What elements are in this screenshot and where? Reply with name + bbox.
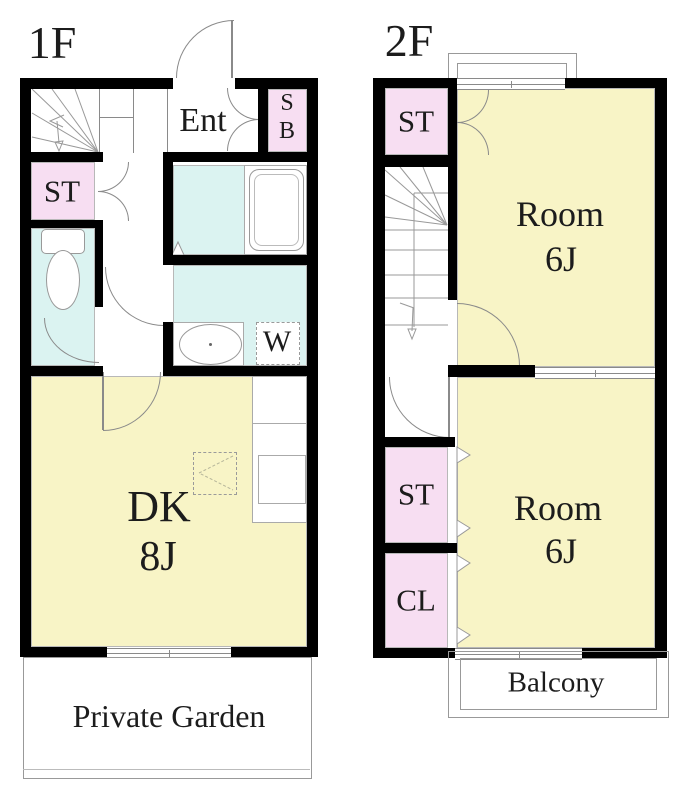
stove-chevron-icon — [195, 454, 235, 492]
storage-label: ST — [44, 176, 80, 207]
wall — [373, 78, 385, 658]
wall — [20, 220, 103, 228]
wall — [20, 366, 103, 376]
storage-2f-top-label: ST — [398, 106, 434, 137]
room2-size-label: 6J — [545, 533, 577, 569]
counter-divider — [253, 423, 306, 424]
washroom-door-arc — [105, 267, 164, 326]
storage-door-arc — [98, 162, 129, 192]
wall — [373, 648, 455, 658]
wall — [385, 543, 457, 553]
floor-plan-canvas: 1F — [0, 0, 690, 800]
dk-label: DK — [127, 485, 191, 529]
stair-edge-line — [99, 89, 100, 152]
wall — [655, 78, 667, 658]
floor1-title: 1F — [28, 20, 77, 66]
washbasin-drain — [209, 343, 212, 346]
wall — [163, 162, 173, 265]
wall — [20, 152, 103, 162]
kitchen-sink — [258, 455, 306, 504]
stairs-2f-icon — [385, 167, 448, 367]
dk-door-leaf — [102, 372, 104, 430]
room1-size-label: 6J — [545, 241, 577, 277]
dk-size-label: 8J — [139, 536, 176, 578]
wall — [163, 322, 173, 367]
wall — [163, 366, 318, 376]
shoebox-door-arc — [227, 88, 259, 120]
window-sliding — [457, 78, 565, 90]
shoebox-door-arc — [227, 119, 259, 151]
wall — [163, 255, 307, 265]
entrance-door-arc — [176, 20, 234, 78]
entrance-door-leaf — [231, 20, 233, 78]
room2-label: Room — [514, 490, 602, 526]
floor2-title: 2F — [385, 18, 434, 64]
bath-door-mark — [172, 242, 185, 255]
wall — [235, 78, 318, 89]
wall — [565, 78, 667, 88]
garden-edge-line — [23, 769, 310, 770]
wall — [448, 365, 535, 377]
wall — [163, 152, 318, 162]
wall — [20, 78, 173, 89]
bathtub-inner — [254, 174, 299, 246]
wall — [373, 78, 457, 88]
wall — [95, 228, 103, 307]
wall — [448, 167, 457, 300]
shoebox-label-b: B — [279, 119, 295, 143]
stair-tread-line — [99, 117, 133, 118]
wall — [258, 88, 268, 152]
ent-label: Ent — [179, 104, 226, 138]
room2-door-arc — [389, 377, 450, 438]
storage-2f-label: ST — [398, 479, 434, 510]
closet-label: CL — [396, 585, 436, 616]
wall — [385, 437, 455, 447]
storage-door-arc — [98, 191, 129, 221]
wall — [385, 155, 457, 167]
room2-door-leaf — [448, 377, 450, 437]
stair-edge-line — [133, 89, 134, 153]
room1-label: Room — [516, 196, 604, 232]
shoebox-label-s: S — [280, 91, 293, 115]
ent-floor-line — [167, 89, 168, 152]
wall — [231, 647, 318, 657]
window-sliding — [535, 367, 655, 379]
wall — [20, 647, 107, 657]
garden-label: Private Garden — [73, 700, 266, 732]
washer-label: W — [263, 327, 291, 357]
balcony-label: Balcony — [508, 669, 605, 698]
stairs-1f-icon — [31, 89, 133, 153]
toilet-bowl-icon — [46, 250, 80, 310]
